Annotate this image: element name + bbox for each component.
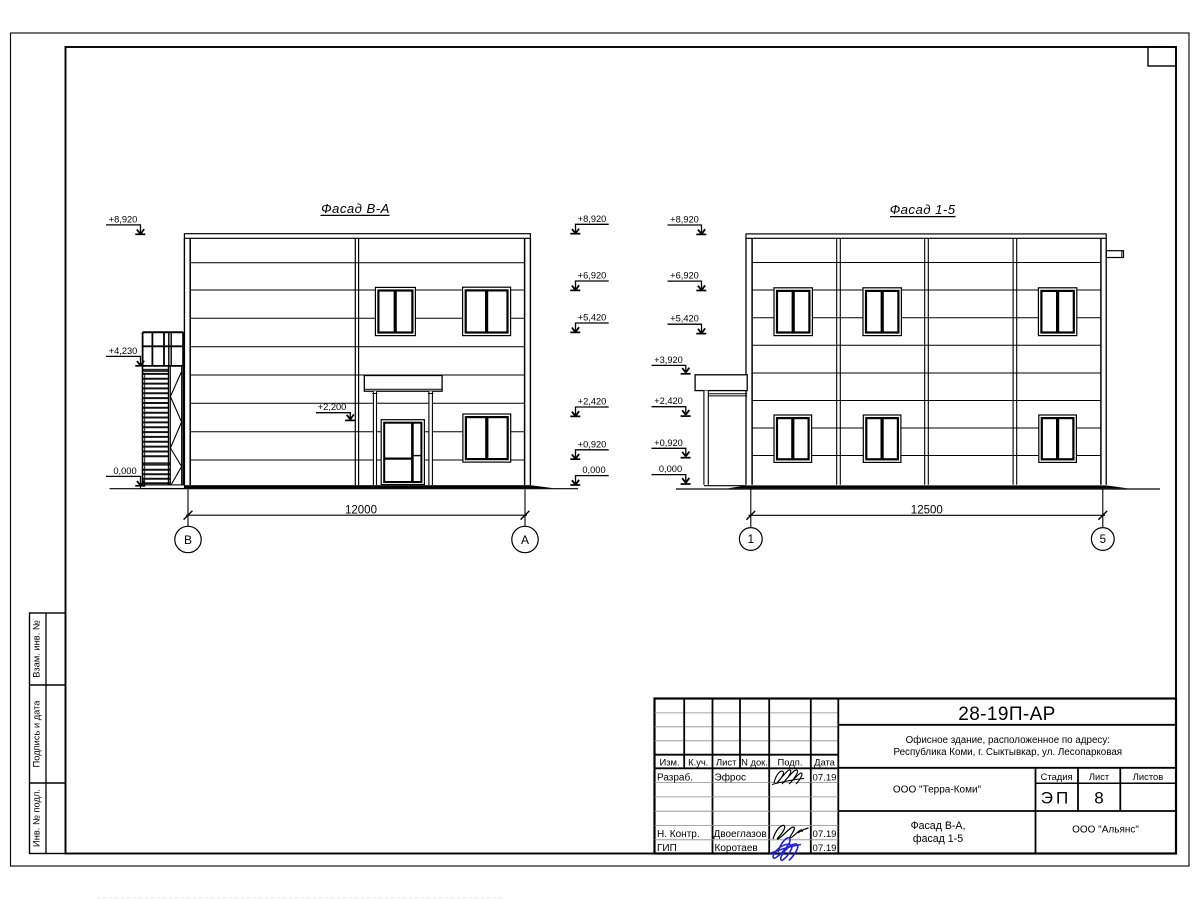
svg-text:N док.: N док. [741, 756, 768, 767]
svg-text:+8,920: +8,920 [109, 214, 138, 224]
svg-text:ООО "Альянс": ООО "Альянс" [1072, 824, 1139, 835]
svg-text:Н. Контр.: Н. Контр. [657, 829, 700, 840]
svg-text:Инв. № подл.: Инв. № подл. [32, 789, 42, 847]
svg-text:1: 1 [748, 534, 754, 546]
svg-text:07.19: 07.19 [812, 829, 836, 840]
svg-text:Листов: Листов [1133, 771, 1163, 782]
svg-text:ООО "Терра-Коми": ООО "Терра-Коми" [893, 785, 982, 796]
svg-text:К.уч.: К.уч. [688, 756, 708, 767]
svg-text:0,000: 0,000 [659, 464, 682, 474]
svg-text:фасад 1-5: фасад 1-5 [913, 833, 963, 845]
svg-text:Эфрос: Эфрос [715, 771, 747, 783]
svg-text:Взам. инв. №: Взам. инв. № [32, 620, 42, 678]
svg-text:8: 8 [1094, 789, 1103, 808]
svg-text:+2,420: +2,420 [654, 396, 683, 406]
svg-text:Фасад В-А: Фасад В-А [321, 201, 390, 216]
svg-text:+6,920: +6,920 [670, 271, 699, 281]
svg-text:+4,230: +4,230 [109, 346, 138, 356]
svg-text:+8,920: +8,920 [578, 214, 607, 224]
svg-text:07.19: 07.19 [812, 773, 836, 784]
svg-text:ЭП: ЭП [1041, 789, 1071, 808]
svg-text:Дата: Дата [814, 756, 836, 767]
svg-text:Фасад 1-5: Фасад 1-5 [890, 202, 956, 217]
svg-text:Двоеглазов: Двоеглазов [714, 829, 767, 840]
svg-text:+3,920: +3,920 [654, 355, 683, 365]
svg-text:А: А [521, 533, 529, 547]
svg-text:28-19П-АР: 28-19П-АР [958, 704, 1056, 725]
svg-text:+8,920: +8,920 [670, 215, 699, 225]
svg-text:0,000: 0,000 [582, 465, 605, 475]
svg-text:07.19: 07.19 [812, 843, 836, 854]
svg-text:0,000: 0,000 [113, 466, 136, 476]
svg-text:Лист: Лист [716, 756, 737, 767]
svg-text:Подп.: Подп. [778, 756, 803, 767]
svg-text:12000: 12000 [345, 505, 377, 517]
svg-text:Республика Коми, г. Сыктывкар,: Республика Коми, г. Сыктывкар, ул. Лесоп… [894, 747, 1123, 758]
svg-text:Подпись и дата: Подпись и дата [32, 700, 42, 768]
svg-text:+5,420: +5,420 [578, 313, 607, 323]
svg-text:ГИП: ГИП [657, 843, 677, 854]
svg-text:+2,200: +2,200 [318, 402, 347, 412]
svg-text:Разраб.: Разраб. [657, 771, 693, 783]
svg-text:+0,920: +0,920 [654, 438, 683, 448]
svg-text:В: В [184, 533, 192, 547]
svg-text:+0,920: +0,920 [578, 439, 607, 449]
svg-text:Коротаев: Коротаев [715, 843, 758, 854]
svg-text:Лист: Лист [1089, 771, 1110, 782]
svg-text:+5,420: +5,420 [670, 314, 699, 324]
svg-text:Изм.: Изм. [659, 756, 679, 767]
svg-text:+6,920: +6,920 [578, 271, 607, 281]
svg-text:12500: 12500 [911, 505, 943, 517]
svg-text:+2,420: +2,420 [578, 397, 607, 407]
svg-text:Фасад В-А,: Фасад В-А, [911, 820, 966, 832]
svg-text:Стадия: Стадия [1041, 771, 1073, 782]
svg-text:5: 5 [1100, 534, 1106, 546]
svg-text:Офисное здание, расположенное: Офисное здание, расположенное по адресу: [906, 735, 1110, 746]
